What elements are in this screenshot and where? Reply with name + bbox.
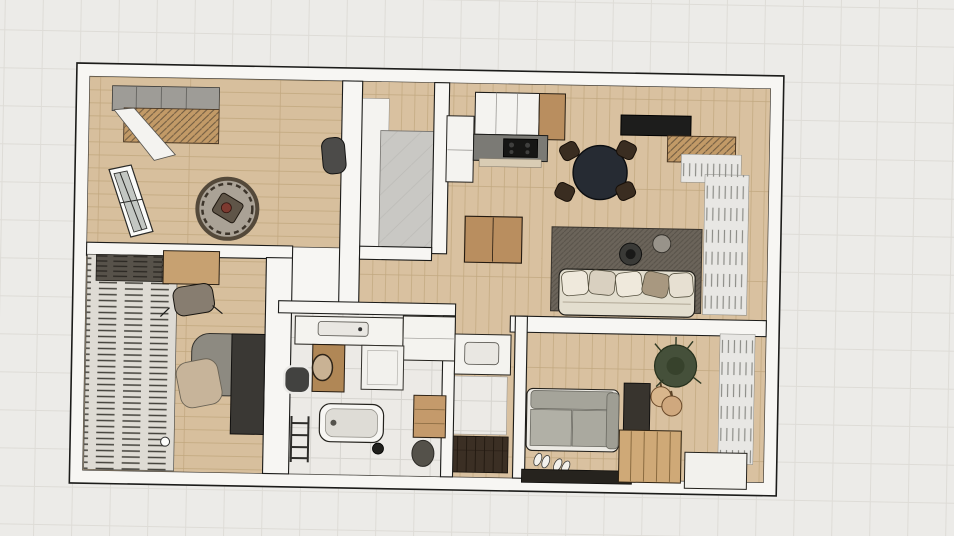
entry-dresser-line-2 <box>414 423 444 424</box>
floorplan-viewport[interactable] <box>0 0 954 536</box>
desk-chair[interactable] <box>172 282 216 317</box>
entry-dresser[interactable] <box>413 395 446 438</box>
curtain-bedroom-br[interactable] <box>718 334 755 465</box>
apartment-floorplan[interactable] <box>69 63 784 496</box>
pumpkin-pouf-2[interactable] <box>662 396 682 416</box>
sofa-bed-seat-1 <box>530 409 572 446</box>
fridge-column[interactable] <box>446 116 474 182</box>
rug-chair-cushion <box>221 203 231 213</box>
armchair-bedroom-tl[interactable] <box>321 137 347 175</box>
wall-mirror[interactable] <box>284 366 310 393</box>
wall-bedroom-top-right[interactable] <box>338 81 362 314</box>
bath-clutter <box>412 440 434 466</box>
sofa-bed-back <box>531 390 615 410</box>
rug-dark-bedroom-br[interactable] <box>521 469 631 484</box>
entry-dresser-line-1 <box>415 409 445 410</box>
pet-ball[interactable] <box>160 437 169 446</box>
bench-slatted[interactable] <box>618 430 681 483</box>
oval-mirror[interactable] <box>312 354 332 380</box>
tv-living[interactable] <box>621 115 691 136</box>
curtain-living-right[interactable] <box>702 175 749 316</box>
cooktop[interactable] <box>503 139 537 158</box>
kitchen-upper-cabinets[interactable] <box>475 92 540 135</box>
wc-sink <box>465 342 499 365</box>
sofa-bed-arm <box>606 393 619 449</box>
desk[interactable] <box>163 251 220 285</box>
cabinet-white-bedroom-br[interactable] <box>684 452 747 489</box>
bath-bin[interactable] <box>372 443 383 454</box>
kitchen-wood-panel[interactable] <box>539 93 566 139</box>
sofa-pillow-1 <box>561 270 589 296</box>
wall-bedroom-left-right[interactable] <box>263 258 293 474</box>
sofa-pillow-2 <box>588 269 616 296</box>
floor-entry-tile <box>448 376 507 435</box>
counter-front <box>479 158 541 167</box>
wall-bathroom-top[interactable] <box>278 301 455 316</box>
wall-bedroom-br-left[interactable] <box>512 316 527 478</box>
blanket[interactable] <box>174 357 224 410</box>
pouf-living[interactable] <box>653 235 671 253</box>
floorplan-canvas[interactable] <box>0 0 954 536</box>
pumpkin-stem-2 <box>671 391 672 396</box>
sideboard-dark[interactable] <box>96 254 162 281</box>
wardrobe-dark-panel[interactable] <box>230 334 265 435</box>
wall-marble-bottom[interactable] <box>359 246 431 260</box>
sofa-pillow-5 <box>668 272 694 298</box>
floor-hall-marble[interactable] <box>379 131 434 251</box>
sofa-pillow-3 <box>615 271 644 298</box>
